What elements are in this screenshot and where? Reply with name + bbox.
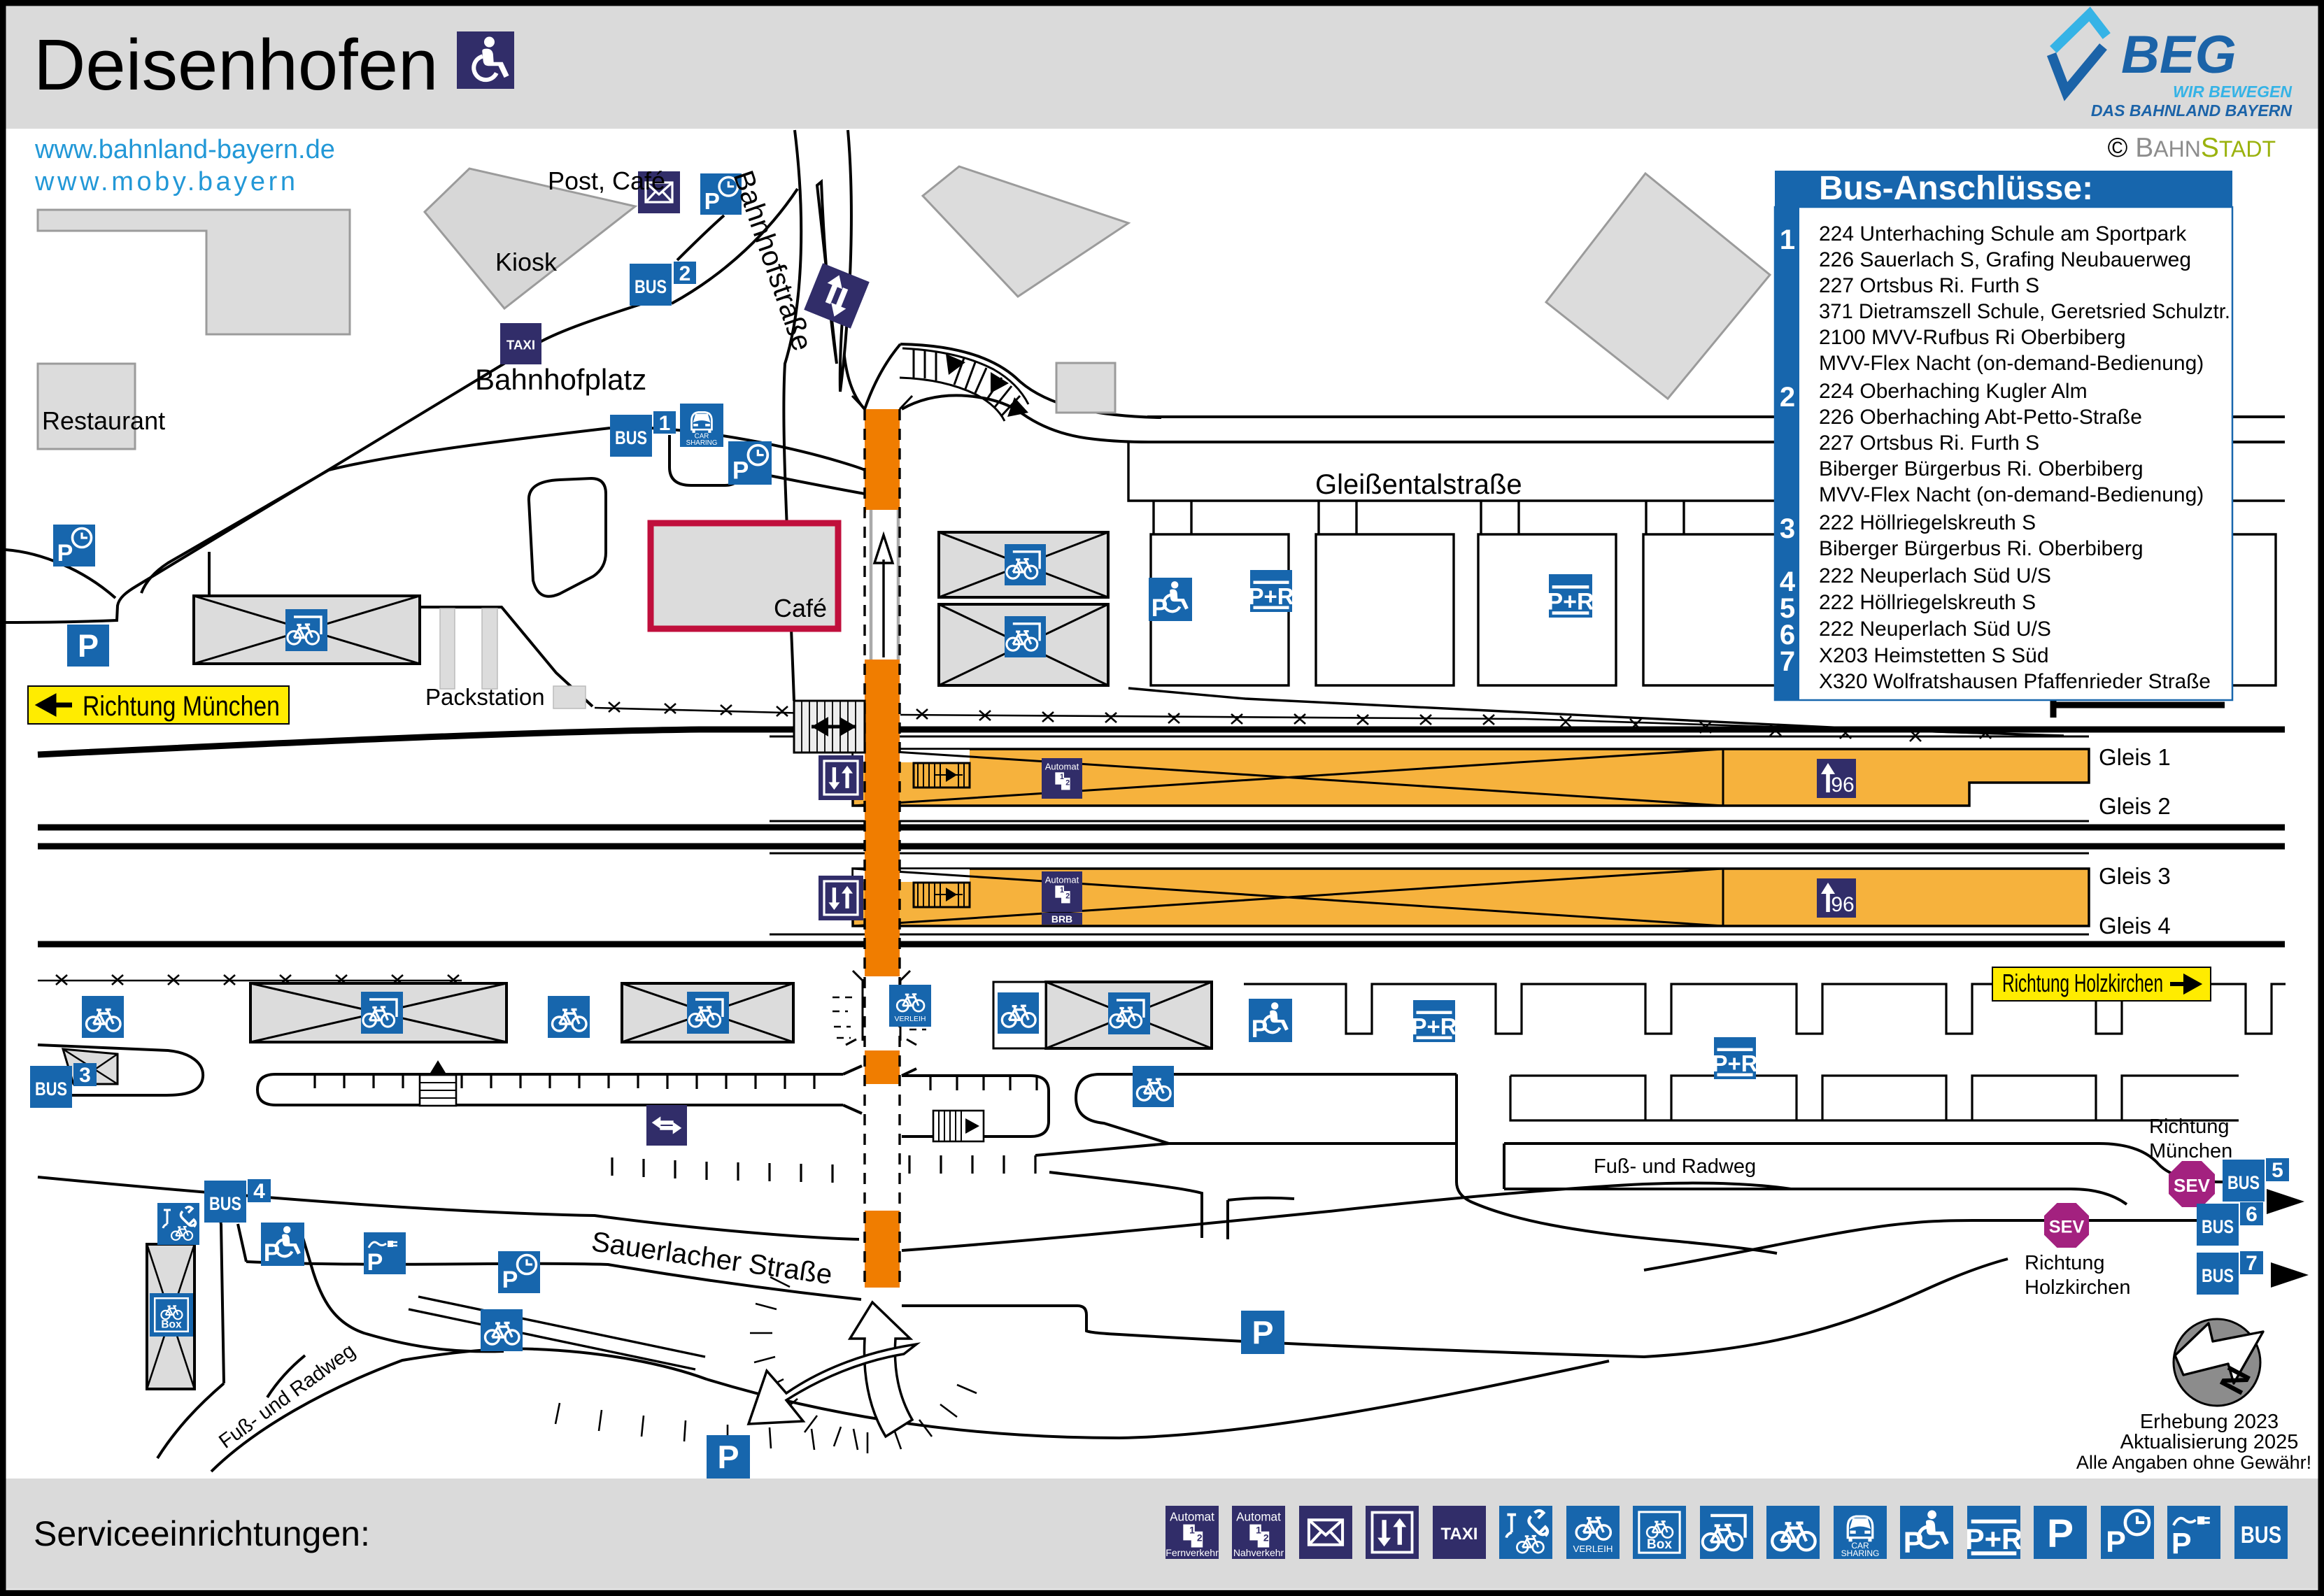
svg-text:Bus-Anschlüsse:: Bus-Anschlüsse: <box>1819 170 2093 207</box>
svg-text:Deisenhofen: Deisenhofen <box>34 24 438 105</box>
svg-text:Gleis 3: Gleis 3 <box>2099 863 2171 889</box>
svg-text:7: 7 <box>2246 1252 2258 1275</box>
svg-text:Fuß- und Radweg: Fuß- und Radweg <box>1594 1155 1756 1178</box>
svg-text:2100 MVV-Rufbus Ri Oberbiberg: 2100 MVV-Rufbus Ri Oberbiberg <box>1819 326 2126 349</box>
svg-text:München: München <box>2149 1140 2232 1162</box>
svg-text:226 Sauerlach S, Grafing Neuba: 226 Sauerlach S, Grafing Neubauerweg <box>1819 248 2191 271</box>
svg-text:2: 2 <box>679 262 691 285</box>
svg-text:5: 5 <box>2272 1159 2283 1182</box>
svg-text:222 Neuperlach Süd U/S: 222 Neuperlach Süd U/S <box>1819 564 2051 587</box>
svg-text:www.bahnland-bayern.de: www.bahnland-bayern.de <box>34 135 335 164</box>
svg-text:Biberger Bürgerbus Ri. Oberbib: Biberger Bürgerbus Ri. Oberbiberg <box>1819 537 2144 560</box>
svg-text:Gleißentalstraße: Gleißentalstraße <box>1315 469 1522 500</box>
svg-text:© BAHNSTADT: © BAHNSTADT <box>2108 133 2276 163</box>
svg-text:Richtung Holzkirchen: Richtung Holzkirchen <box>2002 969 2163 997</box>
svg-text:1: 1 <box>1780 225 1795 255</box>
svg-text:7: 7 <box>1780 646 1795 677</box>
svg-text:3: 3 <box>1780 513 1795 544</box>
svg-text:Serviceeinrichtungen:: Serviceeinrichtungen: <box>34 1514 370 1553</box>
svg-text:Kiosk: Kiosk <box>495 248 558 276</box>
svg-text:Richtung München: Richtung München <box>83 691 280 722</box>
svg-text:Gleis 2: Gleis 2 <box>2099 793 2171 819</box>
svg-text:DAS BAHNLAND BAYERN: DAS BAHNLAND BAYERN <box>2091 101 2292 120</box>
svg-text:Holzkirchen: Holzkirchen <box>2025 1276 2131 1299</box>
svg-text:Alle Angaben ohne Gewähr!: Alle Angaben ohne Gewähr! <box>2076 1452 2311 1473</box>
svg-text:6: 6 <box>2246 1203 2258 1226</box>
svg-text:MVV-Flex Nacht (on-demand-Bedi: MVV-Flex Nacht (on-demand-Bedienung) <box>1819 483 2204 506</box>
svg-text:Erhebung 2023: Erhebung 2023 <box>2140 1411 2279 1433</box>
svg-text:226 Oberhaching Abt-Petto-Stra: 226 Oberhaching Abt-Petto-Straße <box>1819 406 2142 429</box>
svg-text:227 Ortsbus Ri. Furth S: 227 Ortsbus Ri. Furth S <box>1819 274 2039 297</box>
svg-text:www.moby.bayern: www.moby.bayern <box>34 167 299 197</box>
svg-text:Bahnhofplatz: Bahnhofplatz <box>475 363 646 396</box>
svg-text:Post, Café: Post, Café <box>548 166 665 195</box>
svg-text:Biberger Bürgerbus Ri. Oberbib: Biberger Bürgerbus Ri. Oberbiberg <box>1819 457 2144 480</box>
svg-text:2: 2 <box>1780 382 1795 413</box>
svg-text:227 Ortsbus Ri. Furth S: 227 Ortsbus Ri. Furth S <box>1819 432 2039 455</box>
svg-text:X320 Wolfratshausen Pfaffenrie: X320 Wolfratshausen Pfaffenrieder Straße <box>1819 670 2211 693</box>
svg-text:Nahverkehr: Nahverkehr <box>1233 1547 1284 1558</box>
svg-text:Gleis 4: Gleis 4 <box>2099 913 2171 939</box>
svg-text:Richtung: Richtung <box>2149 1116 2229 1138</box>
svg-text:MVV-Flex Nacht (on-demand-Bedi: MVV-Flex Nacht (on-demand-Bedienung) <box>1819 352 2204 375</box>
svg-text:WIR BEWEGEN: WIR BEWEGEN <box>2173 83 2292 101</box>
svg-text:1: 1 <box>659 412 671 435</box>
svg-text:Fernverkehr: Fernverkehr <box>1165 1547 1219 1558</box>
svg-text:222 Höllriegelskreuth S: 222 Höllriegelskreuth S <box>1819 511 2036 534</box>
svg-text:224 Oberhaching Kugler Alm: 224 Oberhaching Kugler Alm <box>1819 380 2088 403</box>
svg-text:Richtung: Richtung <box>2025 1252 2104 1274</box>
svg-text:4: 4 <box>253 1180 265 1203</box>
svg-text:Gleis 1: Gleis 1 <box>2099 744 2171 770</box>
svg-text:222 Höllriegelskreuth S: 222 Höllriegelskreuth S <box>1819 591 2036 614</box>
svg-text:222 Neuperlach Süd U/S: 222 Neuperlach Süd U/S <box>1819 618 2051 641</box>
svg-text:224 Unterhaching Schule am Spo: 224 Unterhaching Schule am Sportpark <box>1819 222 2187 245</box>
svg-text:Packstation: Packstation <box>425 684 545 710</box>
svg-text:Restaurant: Restaurant <box>42 406 165 435</box>
svg-text:3: 3 <box>79 1064 91 1087</box>
svg-text:BEG: BEG <box>2121 25 2237 85</box>
svg-text:Café: Café <box>774 594 827 622</box>
svg-text:371 Dietramszell Schule, Geret: 371 Dietramszell Schule, Geretsried Schu… <box>1819 300 2230 323</box>
svg-text:X203 Heimstetten S Süd: X203 Heimstetten S Süd <box>1819 644 2049 667</box>
svg-text:BRB: BRB <box>1051 913 1072 925</box>
svg-text:Aktualisierung 2025: Aktualisierung 2025 <box>2120 1431 2299 1453</box>
